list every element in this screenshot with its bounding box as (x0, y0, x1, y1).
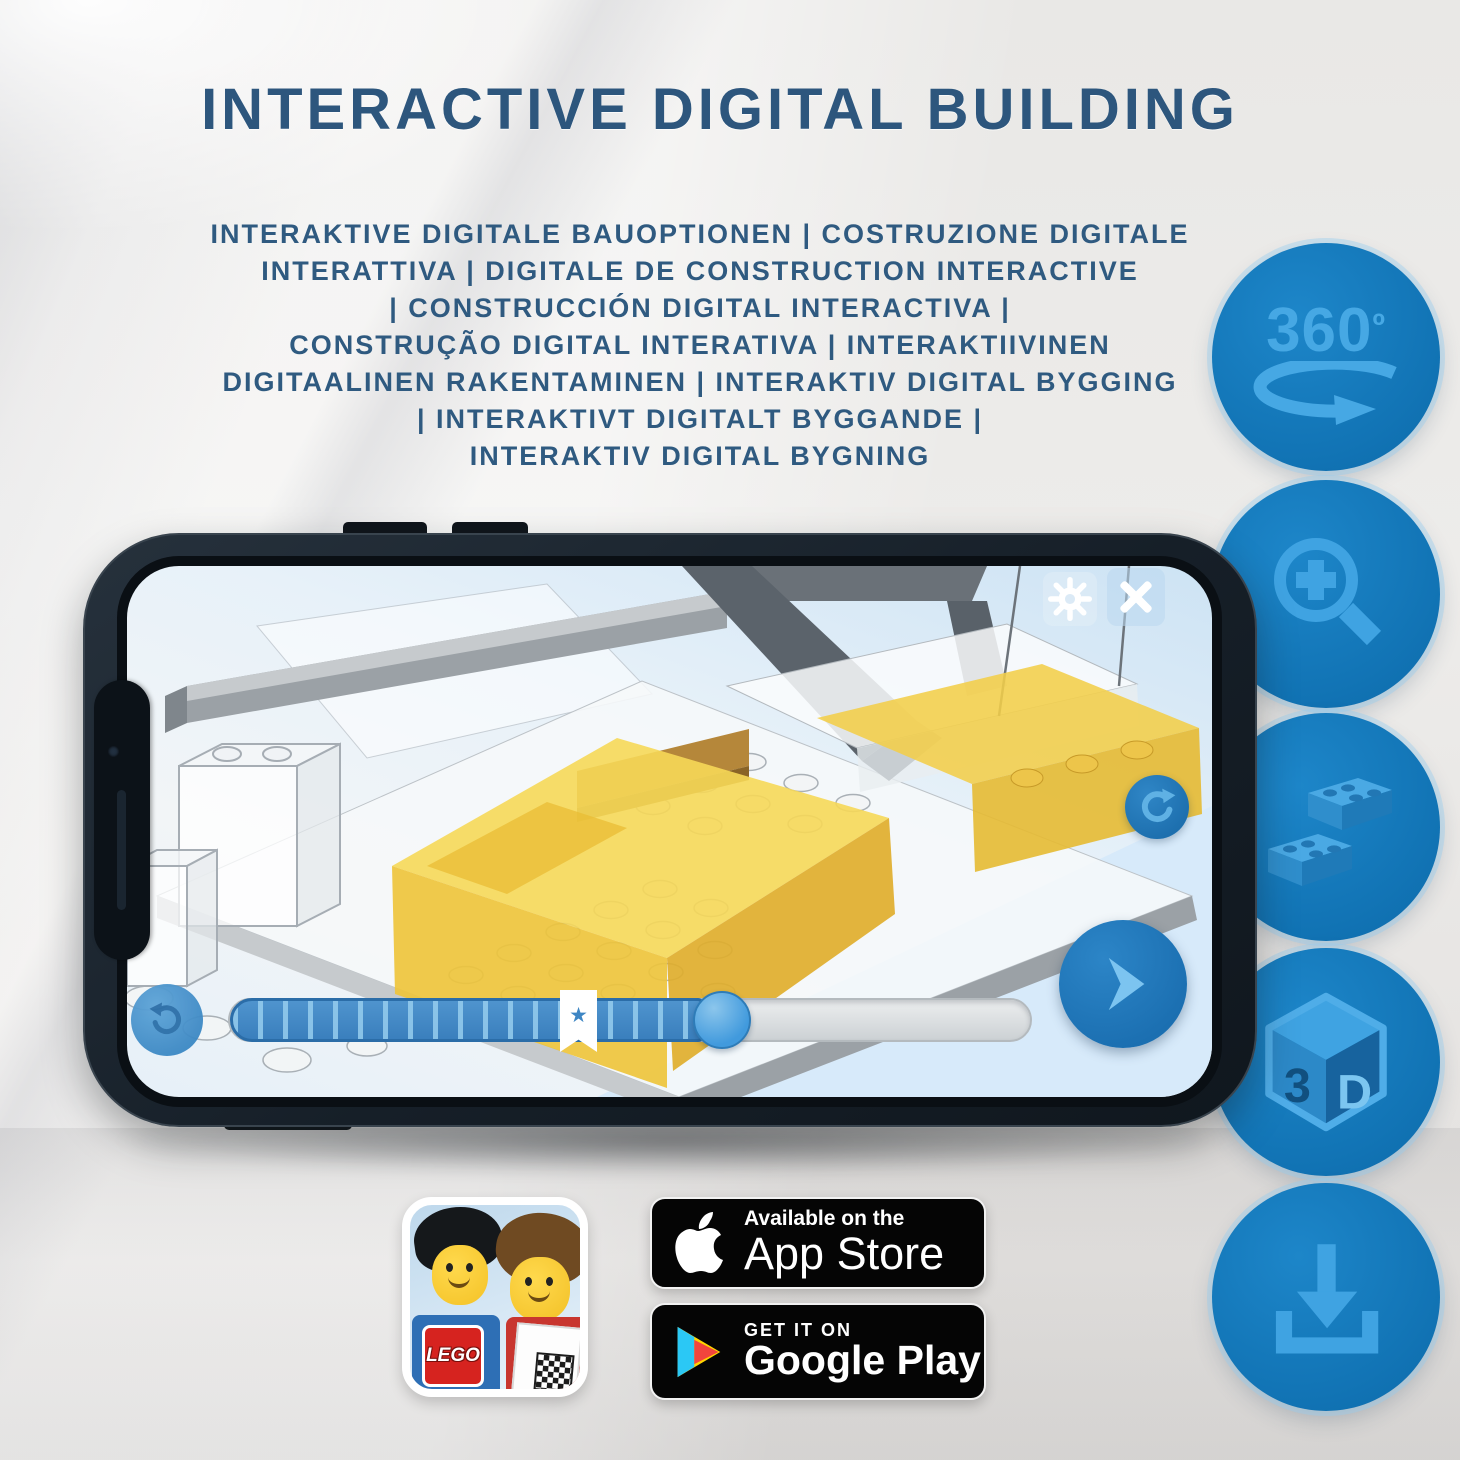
app-screen: ★ (117, 556, 1222, 1107)
google-play-icon (652, 1323, 744, 1381)
google-play-badge[interactable]: GET IT ON Google Play (650, 1303, 986, 1400)
camera-icon (108, 746, 119, 757)
feature-badge-download (1212, 1183, 1440, 1411)
rotate-arrow-icon (1242, 361, 1410, 431)
next-step-button[interactable] (1059, 920, 1187, 1048)
apple-icon (652, 1211, 744, 1275)
svg-text:3: 3 (1284, 1059, 1311, 1113)
reset-rotation-button[interactable] (1125, 775, 1189, 839)
speaker-grille (117, 790, 126, 910)
smartphone: ★ (83, 533, 1257, 1127)
zoom-in-icon (1258, 526, 1394, 662)
phone-notch (94, 680, 150, 960)
subtitle-line: INTERATTIVA | DIGITALE DE CONSTRUCTION I… (170, 253, 1230, 290)
multilingual-subtitle: INTERAKTIVE DIGITALE BAUOPTIONEN | COSTR… (170, 216, 1230, 475)
rotate-back-icon (147, 1000, 187, 1040)
promo-canvas: INTERACTIVE DIGITAL BUILDING INTERAKTIVE… (0, 0, 1460, 1460)
minifig-torso: LEGO (412, 1315, 500, 1397)
refresh-icon (1136, 786, 1178, 828)
instruction-card (511, 1322, 583, 1397)
minifig-face (432, 1245, 488, 1305)
previous-step-button[interactable] (131, 984, 203, 1056)
subtitle-line: INTERAKTIVE DIGITALE BAUOPTIONEN | COSTR… (170, 216, 1230, 253)
google-play-name: Google Play (744, 1339, 981, 1382)
360-degrees-label: 360º (1212, 295, 1440, 366)
next-chevron-icon (1085, 946, 1161, 1022)
minifig-torso (506, 1317, 588, 1397)
page-title: INTERACTIVE DIGITAL BUILDING (0, 76, 1440, 143)
lego-app-icon[interactable]: LEGO (402, 1197, 588, 1397)
svg-text:D: D (1337, 1066, 1372, 1120)
lego-logo: LEGO (422, 1325, 484, 1387)
app-store-name: App Store (744, 1230, 944, 1277)
3d-cube-icon: 3 D (1252, 988, 1400, 1136)
subtitle-line: INTERAKTIV DIGITAL BYGNING (170, 438, 1230, 475)
lego-bricks-icon (1250, 751, 1402, 903)
app-store-tagline: Available on the (744, 1208, 944, 1230)
settings-button[interactable] (1043, 572, 1097, 626)
slider-progress-fill (230, 998, 704, 1042)
subtitle-line: CONSTRUÇÃO DIGITAL INTERATIVA | INTERAKT… (170, 327, 1230, 364)
build-progress-slider[interactable]: ★ (228, 998, 1032, 1042)
qr-code (533, 1352, 574, 1393)
app-store-badge[interactable]: Available on the App Store (650, 1197, 986, 1289)
subtitle-line: | CONSTRUCCIÓN DIGITAL INTERACTIVA | (170, 290, 1230, 327)
download-icon (1256, 1227, 1396, 1367)
subtitle-line: | INTERAKTIVT DIGITALT BYGGANDE | (170, 401, 1230, 438)
minifig-face (510, 1257, 570, 1321)
gear-icon (1048, 577, 1092, 621)
close-button[interactable] (1107, 568, 1165, 626)
subtitle-line: DIGITAALINEN RAKENTAMINEN | INTERAKTIV D… (170, 364, 1230, 401)
slider-knob[interactable] (693, 991, 751, 1049)
feature-badge-360: 360º (1212, 243, 1440, 471)
